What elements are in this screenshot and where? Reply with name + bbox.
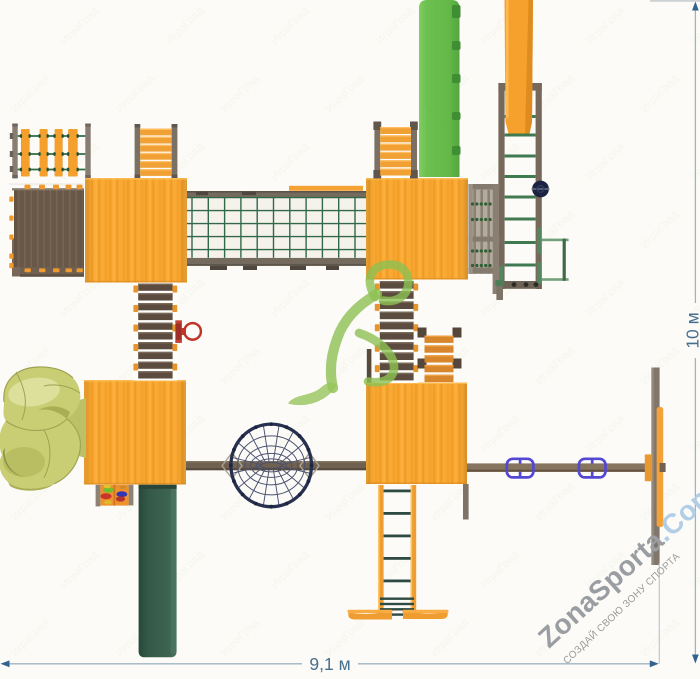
svg-text:10 м: 10 м: [683, 312, 700, 348]
svg-text:9,1 м: 9,1 м: [309, 654, 350, 674]
